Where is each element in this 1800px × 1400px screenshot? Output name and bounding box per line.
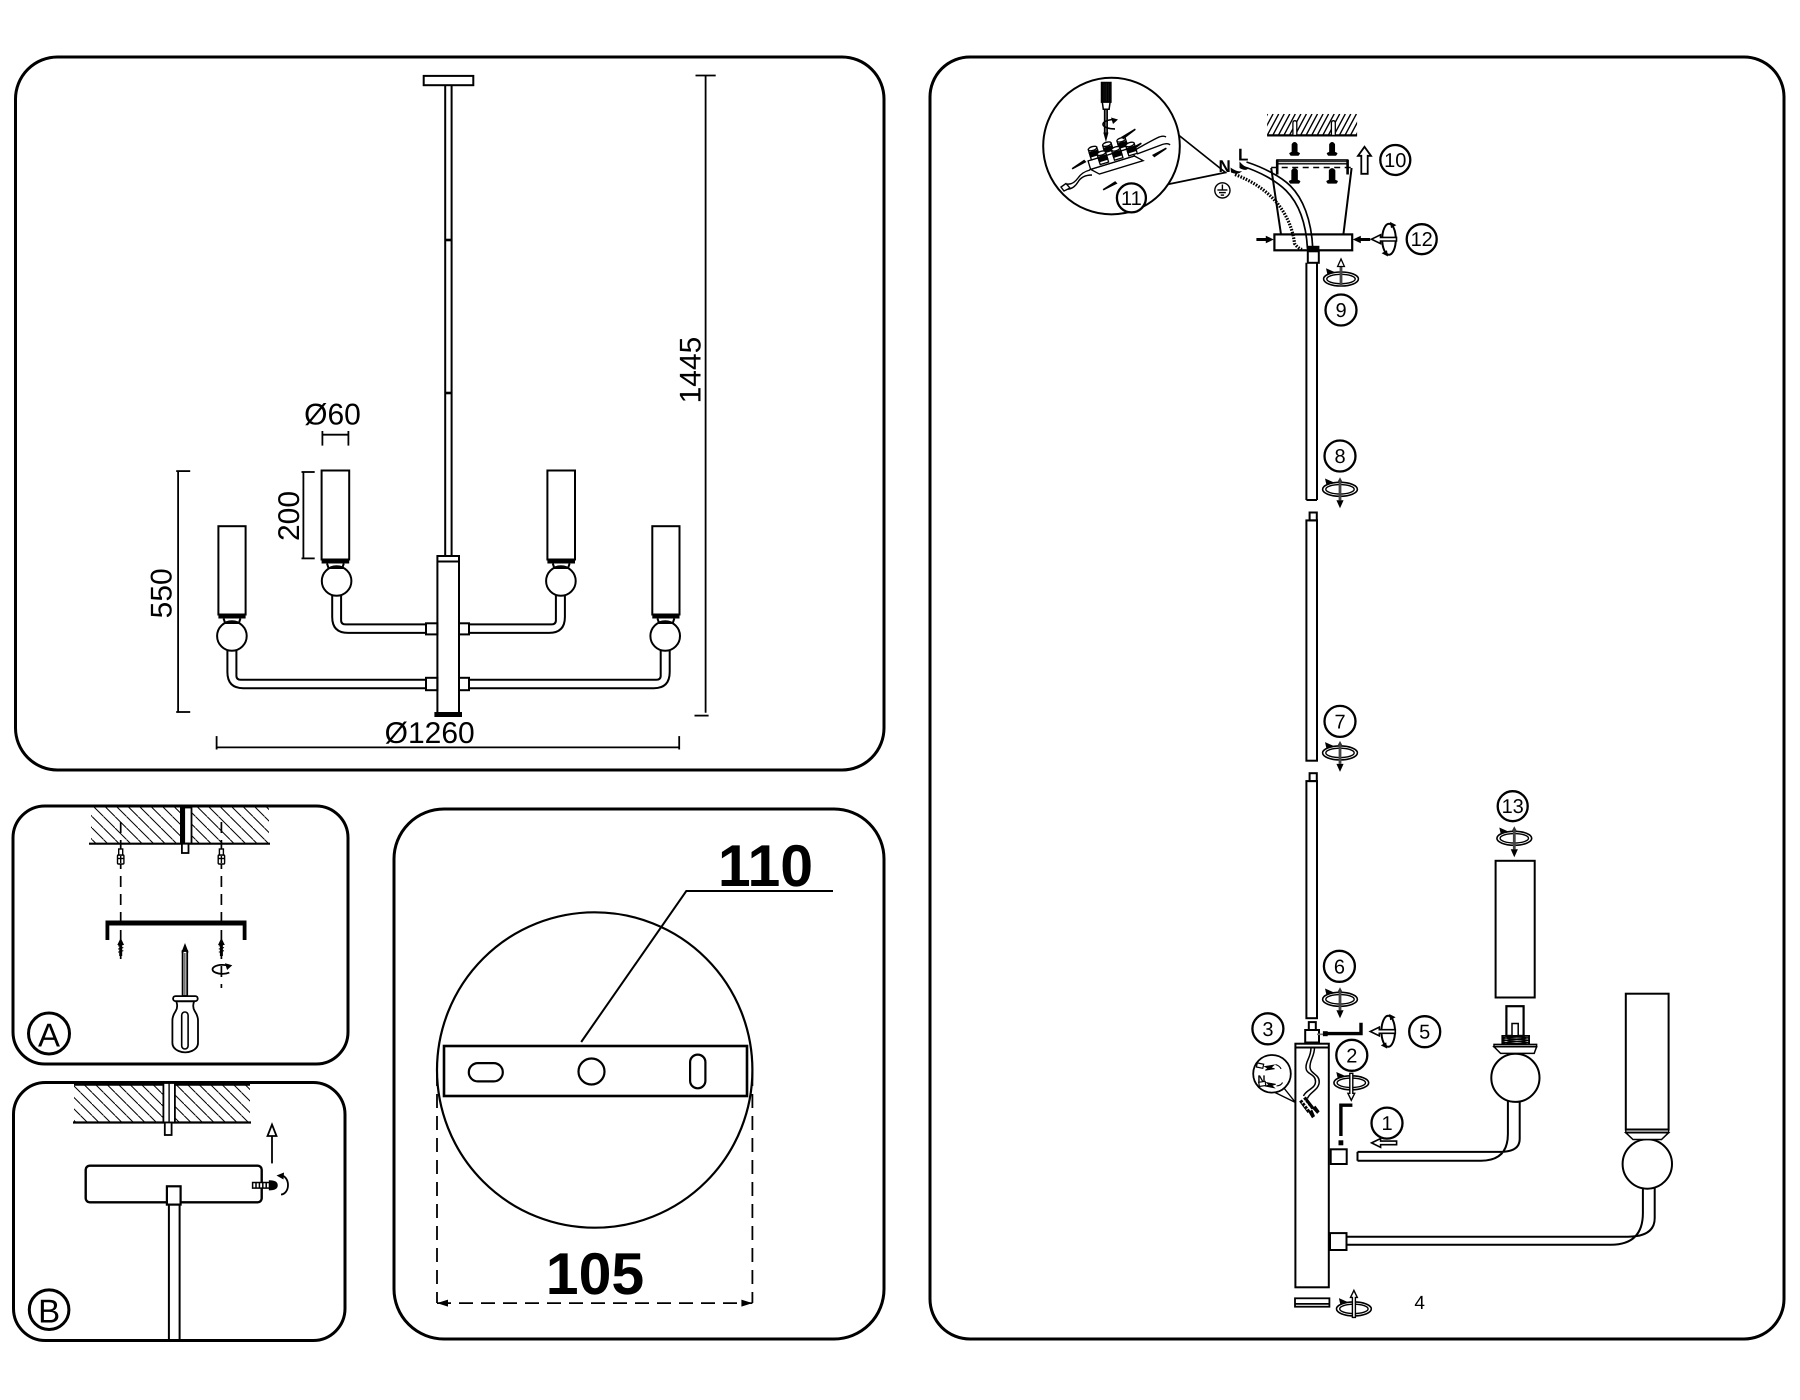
svg-text:105: 105 [546,1241,644,1307]
svg-text:A: A [38,1017,60,1054]
svg-text:12: 12 [1411,229,1433,251]
svg-text:200: 200 [273,491,306,541]
svg-text:7: 7 [1334,711,1345,733]
svg-text:10: 10 [1384,150,1406,172]
svg-text:Ø60: Ø60 [304,399,361,432]
svg-text:B: B [38,1293,60,1330]
svg-text:L: L [1238,146,1248,165]
svg-text:3: 3 [1262,1019,1273,1041]
svg-text:1445: 1445 [675,337,708,404]
svg-text:550: 550 [145,568,178,618]
svg-text:9: 9 [1335,300,1346,322]
svg-text:2: 2 [1346,1045,1357,1067]
svg-text:13: 13 [1502,796,1524,818]
svg-text:110: 110 [718,833,813,899]
svg-text:N: N [1219,157,1231,176]
svg-text:11: 11 [1121,188,1142,210]
svg-text:8: 8 [1334,446,1345,468]
svg-text:4: 4 [1414,1293,1425,1314]
svg-text:Ø1260: Ø1260 [385,717,475,750]
svg-text:5: 5 [1419,1022,1430,1044]
svg-text:6: 6 [1334,956,1345,978]
svg-text:1: 1 [1381,1113,1392,1135]
